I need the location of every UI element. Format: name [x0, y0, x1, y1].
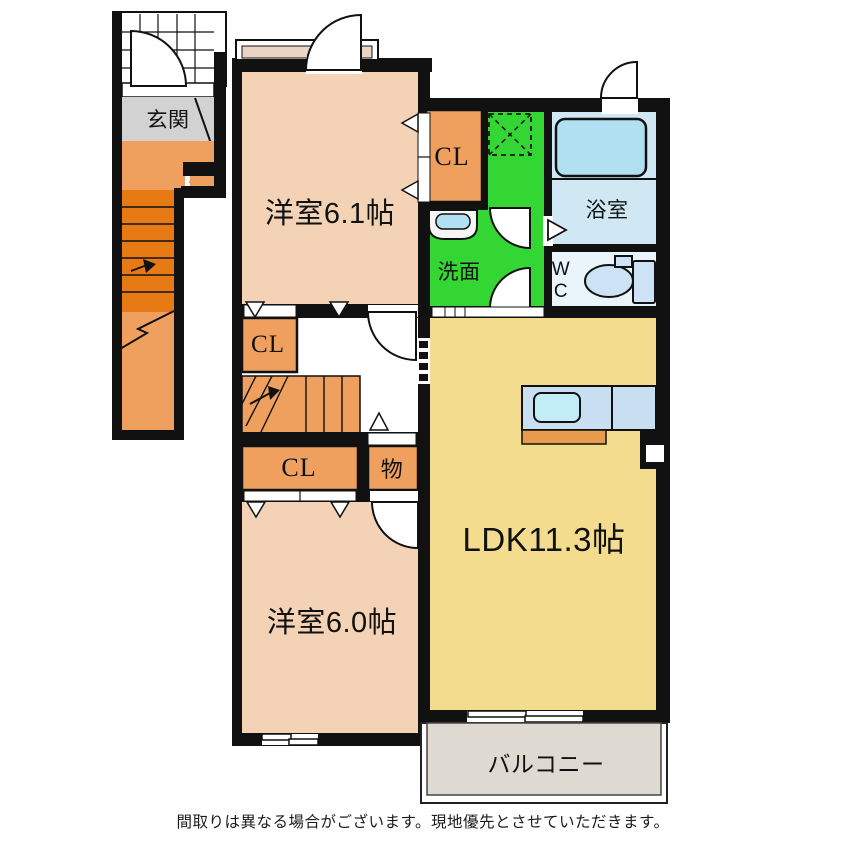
western1-window-swing-arc — [306, 15, 361, 70]
closet-top-label: CL — [434, 142, 469, 172]
kitchen-counter-edge — [522, 430, 606, 444]
wall-unit-east — [656, 98, 670, 722]
genkan-label: 玄関 — [147, 104, 190, 134]
ldk-label: LDK11.3帖 — [463, 513, 626, 561]
western2-door-opening — [370, 491, 418, 501]
wall-left-column-east-lower — [174, 188, 184, 440]
toilet-tank-icon — [633, 261, 655, 303]
wall-left-column-east-upper — [214, 52, 226, 196]
disclaimer-text: 間取りは異なる場合がございます。現地優先とさせていただきます。 — [0, 810, 846, 832]
stairs-landing — [122, 312, 174, 430]
bathtub-icon — [556, 119, 646, 176]
closet-bottom-label: CL — [281, 453, 316, 483]
hall-ldk-opening-dash3 — [419, 363, 428, 370]
balcony-door-sash-left — [468, 711, 526, 717]
western1-door-arc — [368, 312, 416, 360]
floorplan-canvas: 玄関 洋室6.1帖 CL 洗面 浴室 W C CL CL 物 LDK11.3帖 … — [0, 0, 846, 846]
bathroom-label: 浴室 — [586, 194, 629, 224]
toilet-seat-icon — [615, 256, 632, 267]
hall-ldk-opening-dash4 — [419, 374, 428, 381]
balcony-door-sash-right — [525, 716, 583, 722]
kitchen-sink-icon — [534, 393, 580, 422]
toilet-label-c: C — [552, 281, 570, 303]
bath-window-swing-arc — [601, 62, 637, 98]
western2-window-sash-right — [289, 739, 318, 745]
outside-stairs — [122, 190, 174, 312]
floorplan-drawing — [0, 0, 846, 846]
toilet-label-w: W — [552, 259, 570, 281]
wall-left-column-south — [112, 430, 182, 440]
ldk-pillar-niche — [646, 445, 664, 462]
western1-label: 洋室6.1帖 — [265, 190, 395, 232]
door-marker-hall — [370, 413, 388, 430]
wall-unit-west — [232, 58, 242, 746]
washbasin-bowl-icon — [436, 214, 470, 229]
storage-label: 物 — [381, 452, 404, 484]
wall-bath-wc — [548, 244, 658, 252]
western2-window-sash-left — [262, 734, 291, 740]
toilet-label: W C — [552, 259, 570, 303]
western2-label: 洋室6.0帖 — [267, 599, 397, 641]
wall-closet-storage-divider — [358, 444, 368, 492]
balcony-label: バルコニー — [487, 745, 604, 779]
wall-left-column-west — [112, 12, 122, 438]
closet-mid-label: CL — [251, 331, 285, 359]
toilet-bowl-icon — [585, 265, 633, 297]
hall-ldk-opening-dash2 — [419, 352, 428, 359]
storage-sliding-door — [368, 433, 416, 445]
ldk-north-threshold — [432, 307, 544, 317]
washroom-label: 洗面 — [438, 256, 481, 286]
hall-ldk-opening-dash1 — [419, 341, 428, 348]
